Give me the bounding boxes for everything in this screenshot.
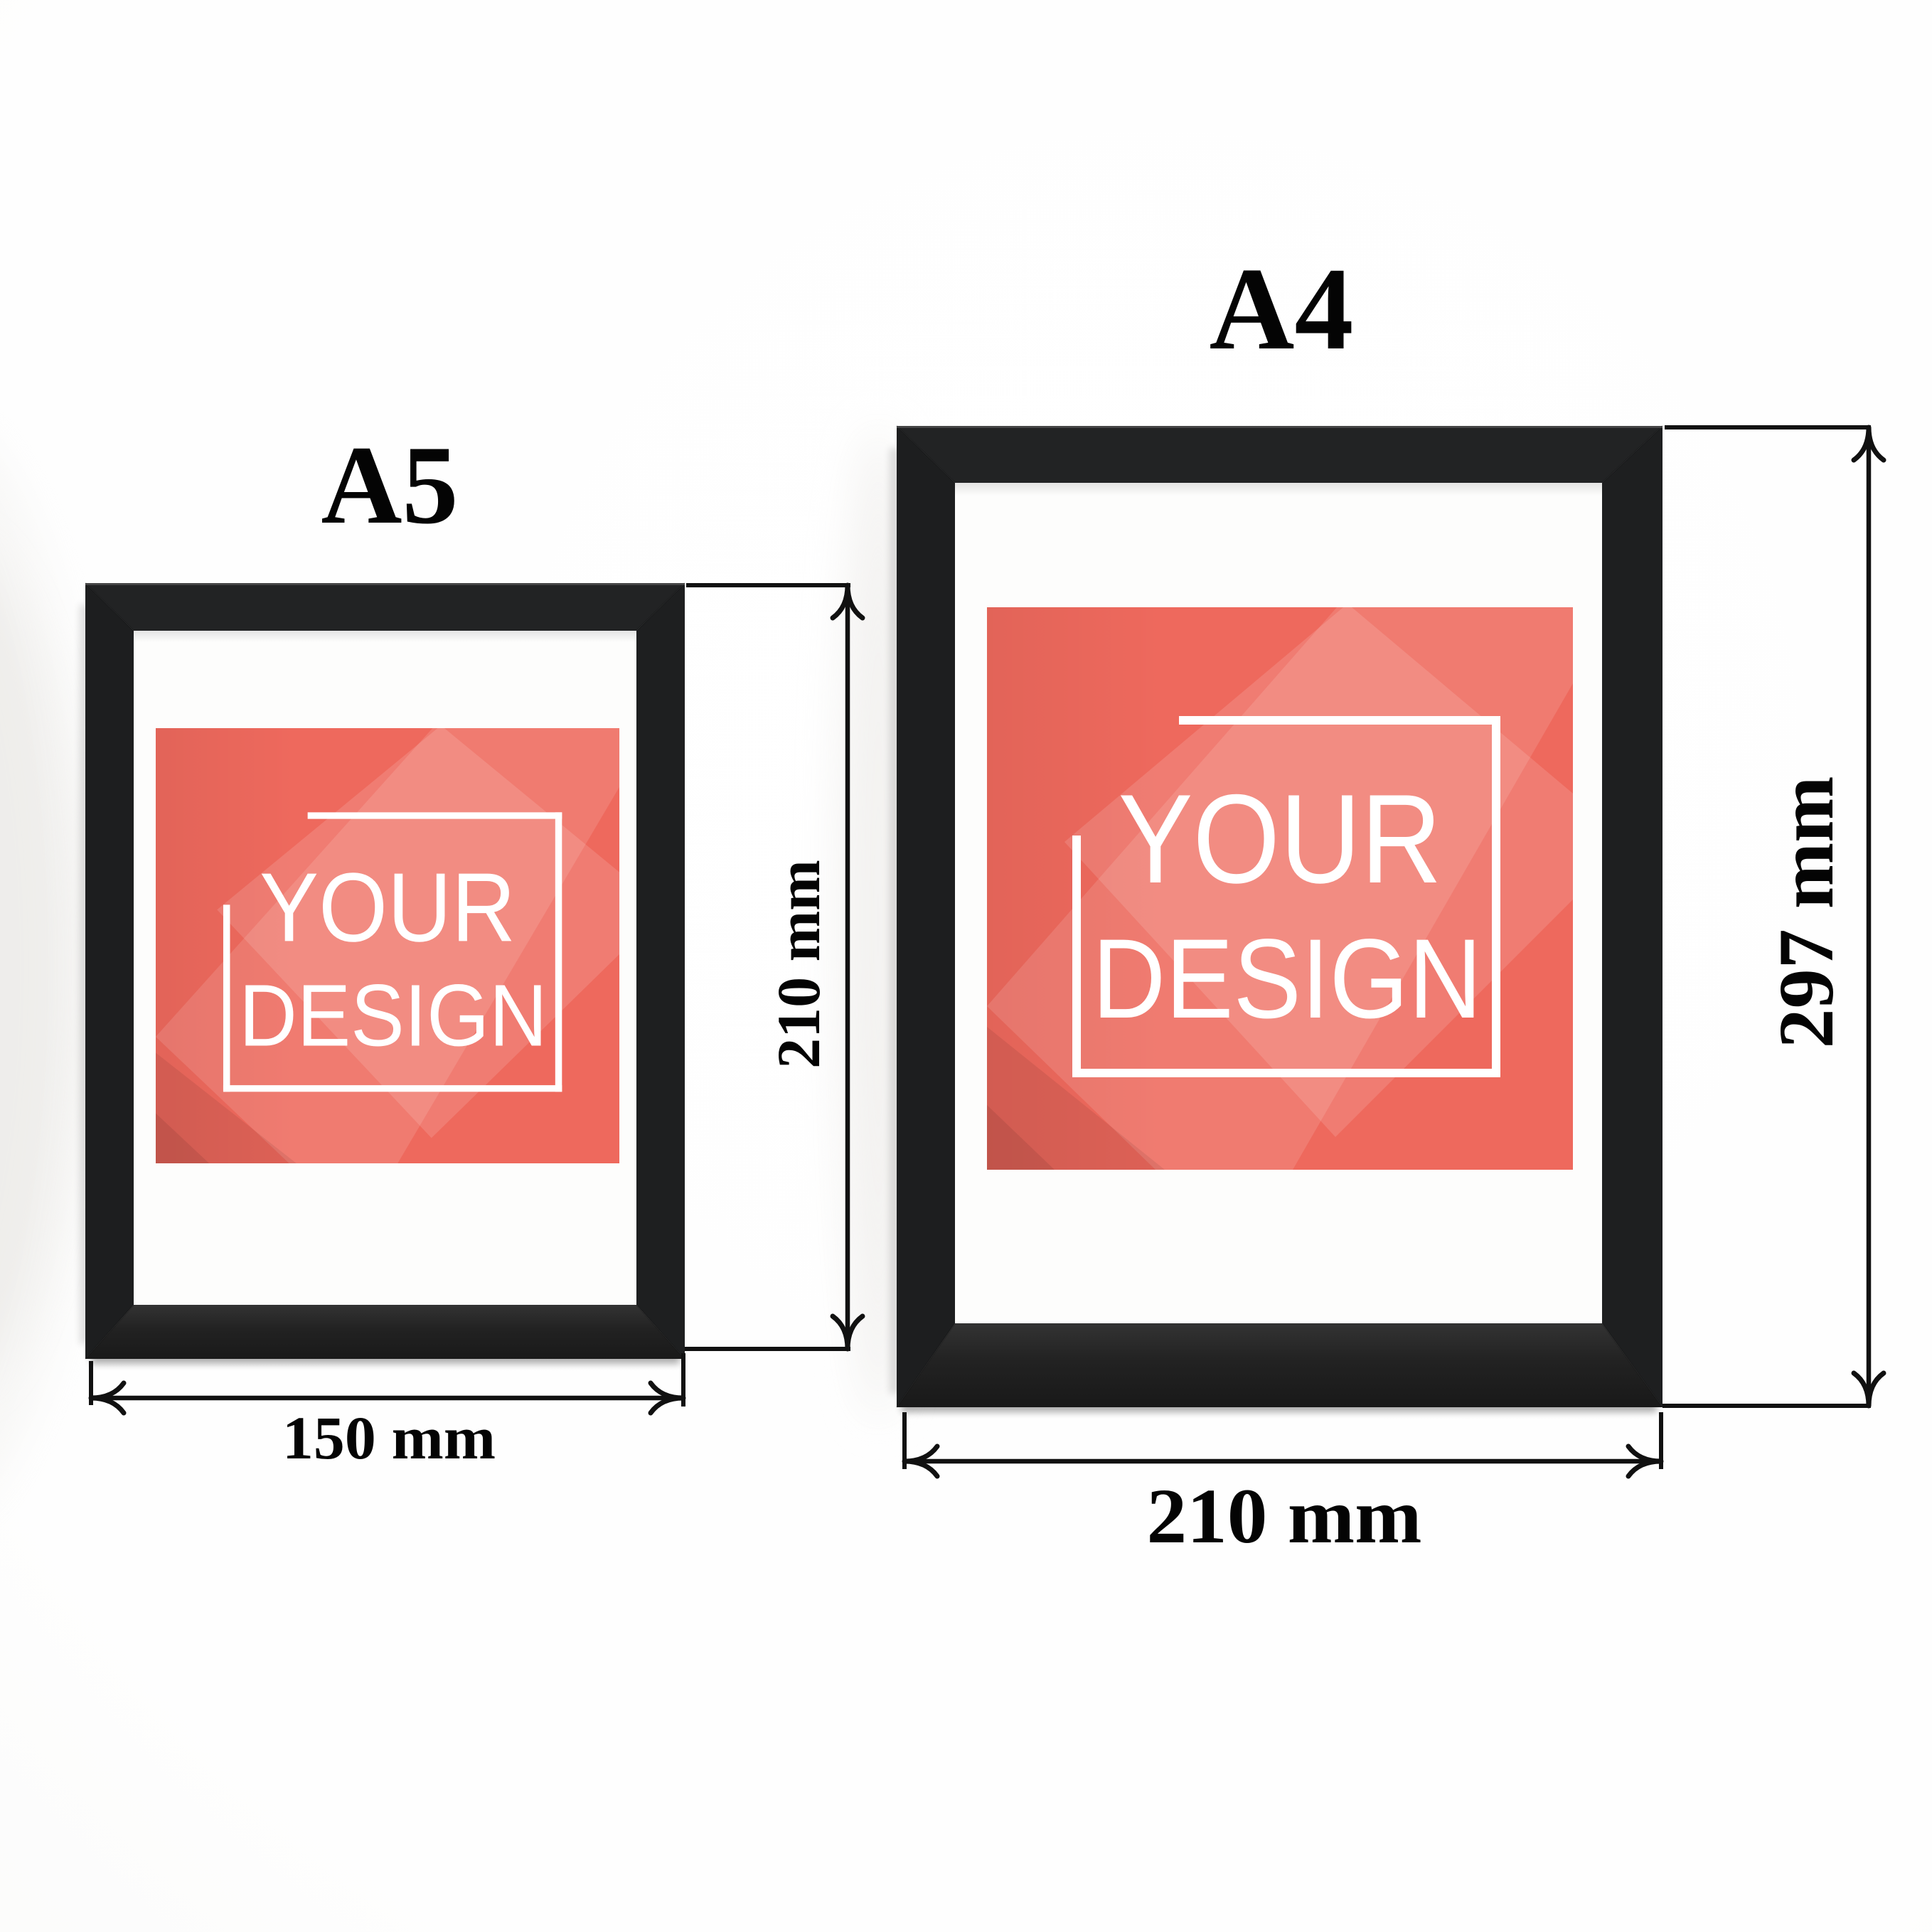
svg-text:210 mm: 210 mm (764, 860, 833, 1069)
svg-text:A5: A5 (321, 423, 458, 548)
svg-text:297 mm: 297 mm (1763, 776, 1850, 1049)
svg-text:210 mm: 210 mm (1147, 1473, 1422, 1559)
svg-text:150 mm: 150 mm (282, 1404, 496, 1472)
svg-text:A4: A4 (1210, 243, 1354, 374)
